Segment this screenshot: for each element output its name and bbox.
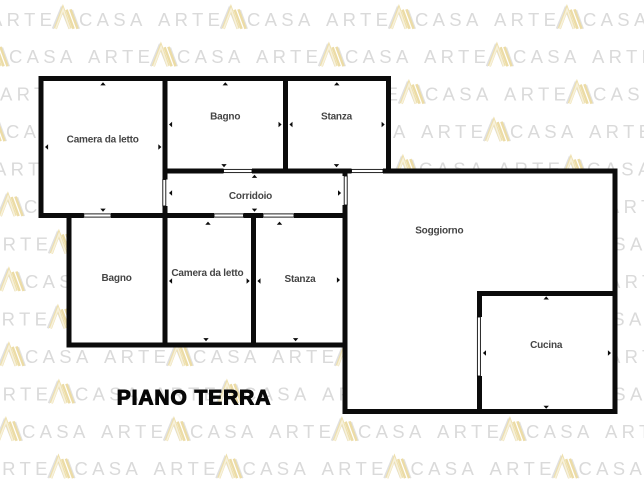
svg-text:ARTE: ARTE xyxy=(0,308,51,329)
svg-text:Bagno: Bagno xyxy=(102,273,132,284)
svg-text:ARTE: ARTE xyxy=(592,46,644,67)
svg-text:ARTE: ARTE xyxy=(256,46,322,67)
svg-text:Stanza: Stanza xyxy=(284,274,316,285)
svg-text:ARTE: ARTE xyxy=(88,46,154,67)
svg-text:CASA: CASA xyxy=(25,346,93,367)
svg-text:CASA: CASA xyxy=(9,46,77,67)
svg-text:ARTE: ARTE xyxy=(0,9,56,30)
svg-text:CASA: CASA xyxy=(22,421,90,442)
svg-text:CASA: CASA xyxy=(190,421,258,442)
svg-text:ARTE: ARTE xyxy=(0,458,52,479)
svg-text:CASA: CASA xyxy=(510,121,578,142)
svg-text:ARTE: ARTE xyxy=(0,383,52,404)
svg-text:ARTE: ARTE xyxy=(589,121,644,142)
svg-text:CASA: CASA xyxy=(177,46,245,67)
svg-text:Bagno: Bagno xyxy=(210,112,240,123)
svg-text:ARTE: ARTE xyxy=(269,421,335,442)
svg-text:ARTE: ARTE xyxy=(504,84,570,105)
svg-text:CASA: CASA xyxy=(513,46,581,67)
svg-text:Corridoio: Corridoio xyxy=(229,191,272,202)
svg-text:CASA: CASA xyxy=(425,84,493,105)
svg-text:ARTE: ARTE xyxy=(421,121,487,142)
svg-text:ARTE: ARTE xyxy=(605,421,644,442)
svg-text:CASA: CASA xyxy=(75,458,143,479)
svg-text:Cucina: Cucina xyxy=(530,340,563,351)
svg-text:CASA: CASA xyxy=(583,9,644,30)
svg-text:ARTE: ARTE xyxy=(272,346,338,367)
svg-text:ARTE: ARTE xyxy=(158,9,224,30)
svg-text:CASA: CASA xyxy=(526,421,594,442)
svg-text:CASA: CASA xyxy=(193,346,261,367)
svg-text:ARTE: ARTE xyxy=(0,234,52,255)
svg-text:ARTE: ARTE xyxy=(104,346,170,367)
svg-text:CASA: CASA xyxy=(345,46,413,67)
svg-text:ARTE: ARTE xyxy=(490,458,556,479)
svg-text:CASA: CASA xyxy=(411,458,479,479)
svg-text:ARTE: ARTE xyxy=(322,458,388,479)
svg-text:CASA: CASA xyxy=(247,9,315,30)
svg-text:CASA: CASA xyxy=(579,458,644,479)
svg-text:CASA: CASA xyxy=(243,458,311,479)
svg-text:Stanza: Stanza xyxy=(321,112,353,123)
svg-text:CASA: CASA xyxy=(415,9,483,30)
svg-text:ARTE: ARTE xyxy=(326,9,392,30)
svg-text:CASA: CASA xyxy=(79,9,147,30)
svg-text:Camera da letto: Camera da letto xyxy=(67,134,139,145)
svg-text:CASA: CASA xyxy=(593,84,644,105)
svg-text:PIANO TERRA: PIANO TERRA xyxy=(117,387,272,410)
svg-text:ARTE: ARTE xyxy=(494,9,560,30)
svg-text:ARTE: ARTE xyxy=(437,421,503,442)
svg-text:Camera da letto: Camera da letto xyxy=(171,268,243,279)
svg-text:ARTE: ARTE xyxy=(101,421,167,442)
svg-text:ARTE: ARTE xyxy=(154,458,220,479)
svg-text:CASA: CASA xyxy=(358,421,426,442)
svg-text:ARTE: ARTE xyxy=(424,46,490,67)
svg-text:Soggiorno: Soggiorno xyxy=(415,226,463,237)
